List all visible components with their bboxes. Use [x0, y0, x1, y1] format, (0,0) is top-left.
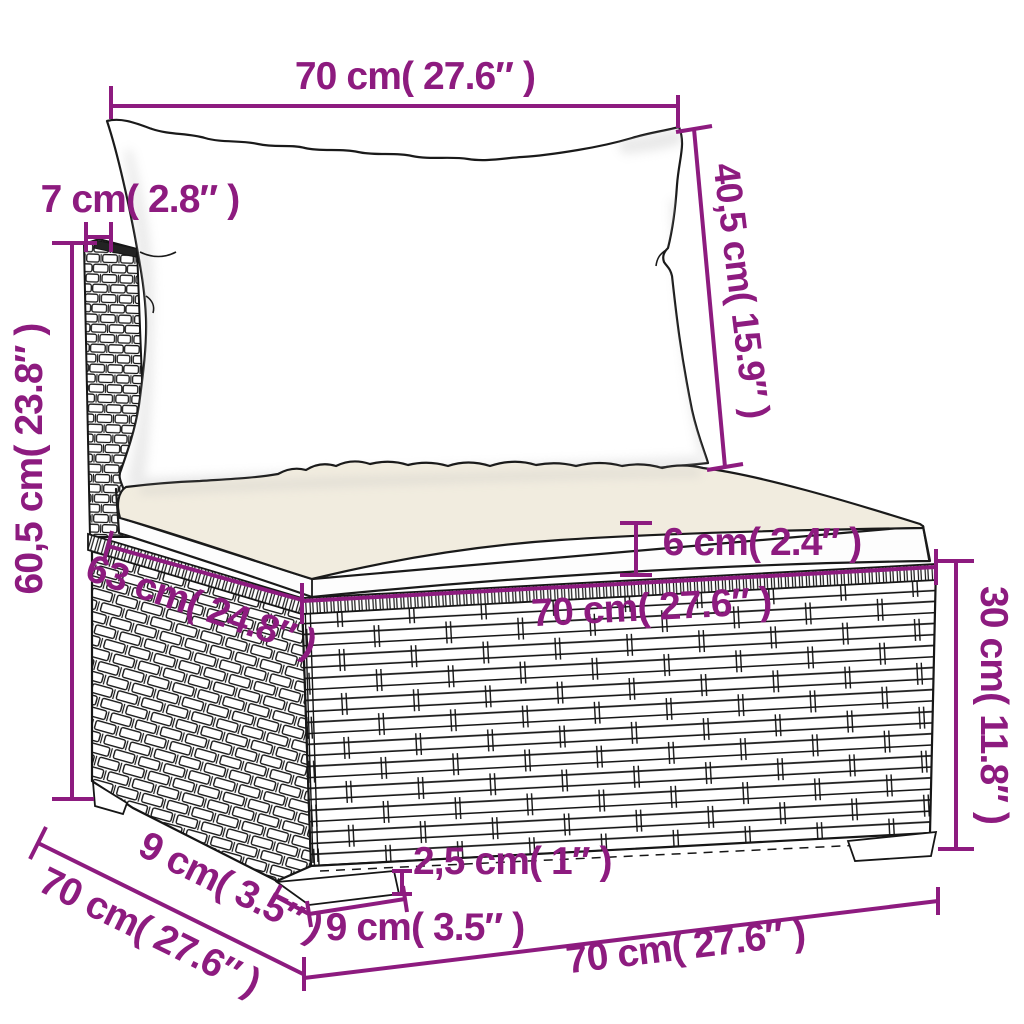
svg-text:7 cm( 2.8″ ): 7 cm( 2.8″ ) [41, 178, 240, 221]
svg-text:2,5 cm( 1″ ): 2,5 cm( 1″ ) [413, 840, 612, 883]
svg-text:70 cm( 27.6″ ): 70 cm( 27.6″ ) [295, 55, 535, 98]
svg-text:6 cm( 2.4″ ): 6 cm( 2.4″ ) [663, 521, 862, 564]
svg-text:9 cm( 3.5″ ): 9 cm( 3.5″ ) [326, 906, 525, 949]
svg-text:60,5 cm( 23.8″ ): 60,5 cm( 23.8″ ) [8, 324, 51, 595]
svg-text:30 cm( 11.8″ ): 30 cm( 11.8″ ) [972, 586, 1015, 824]
